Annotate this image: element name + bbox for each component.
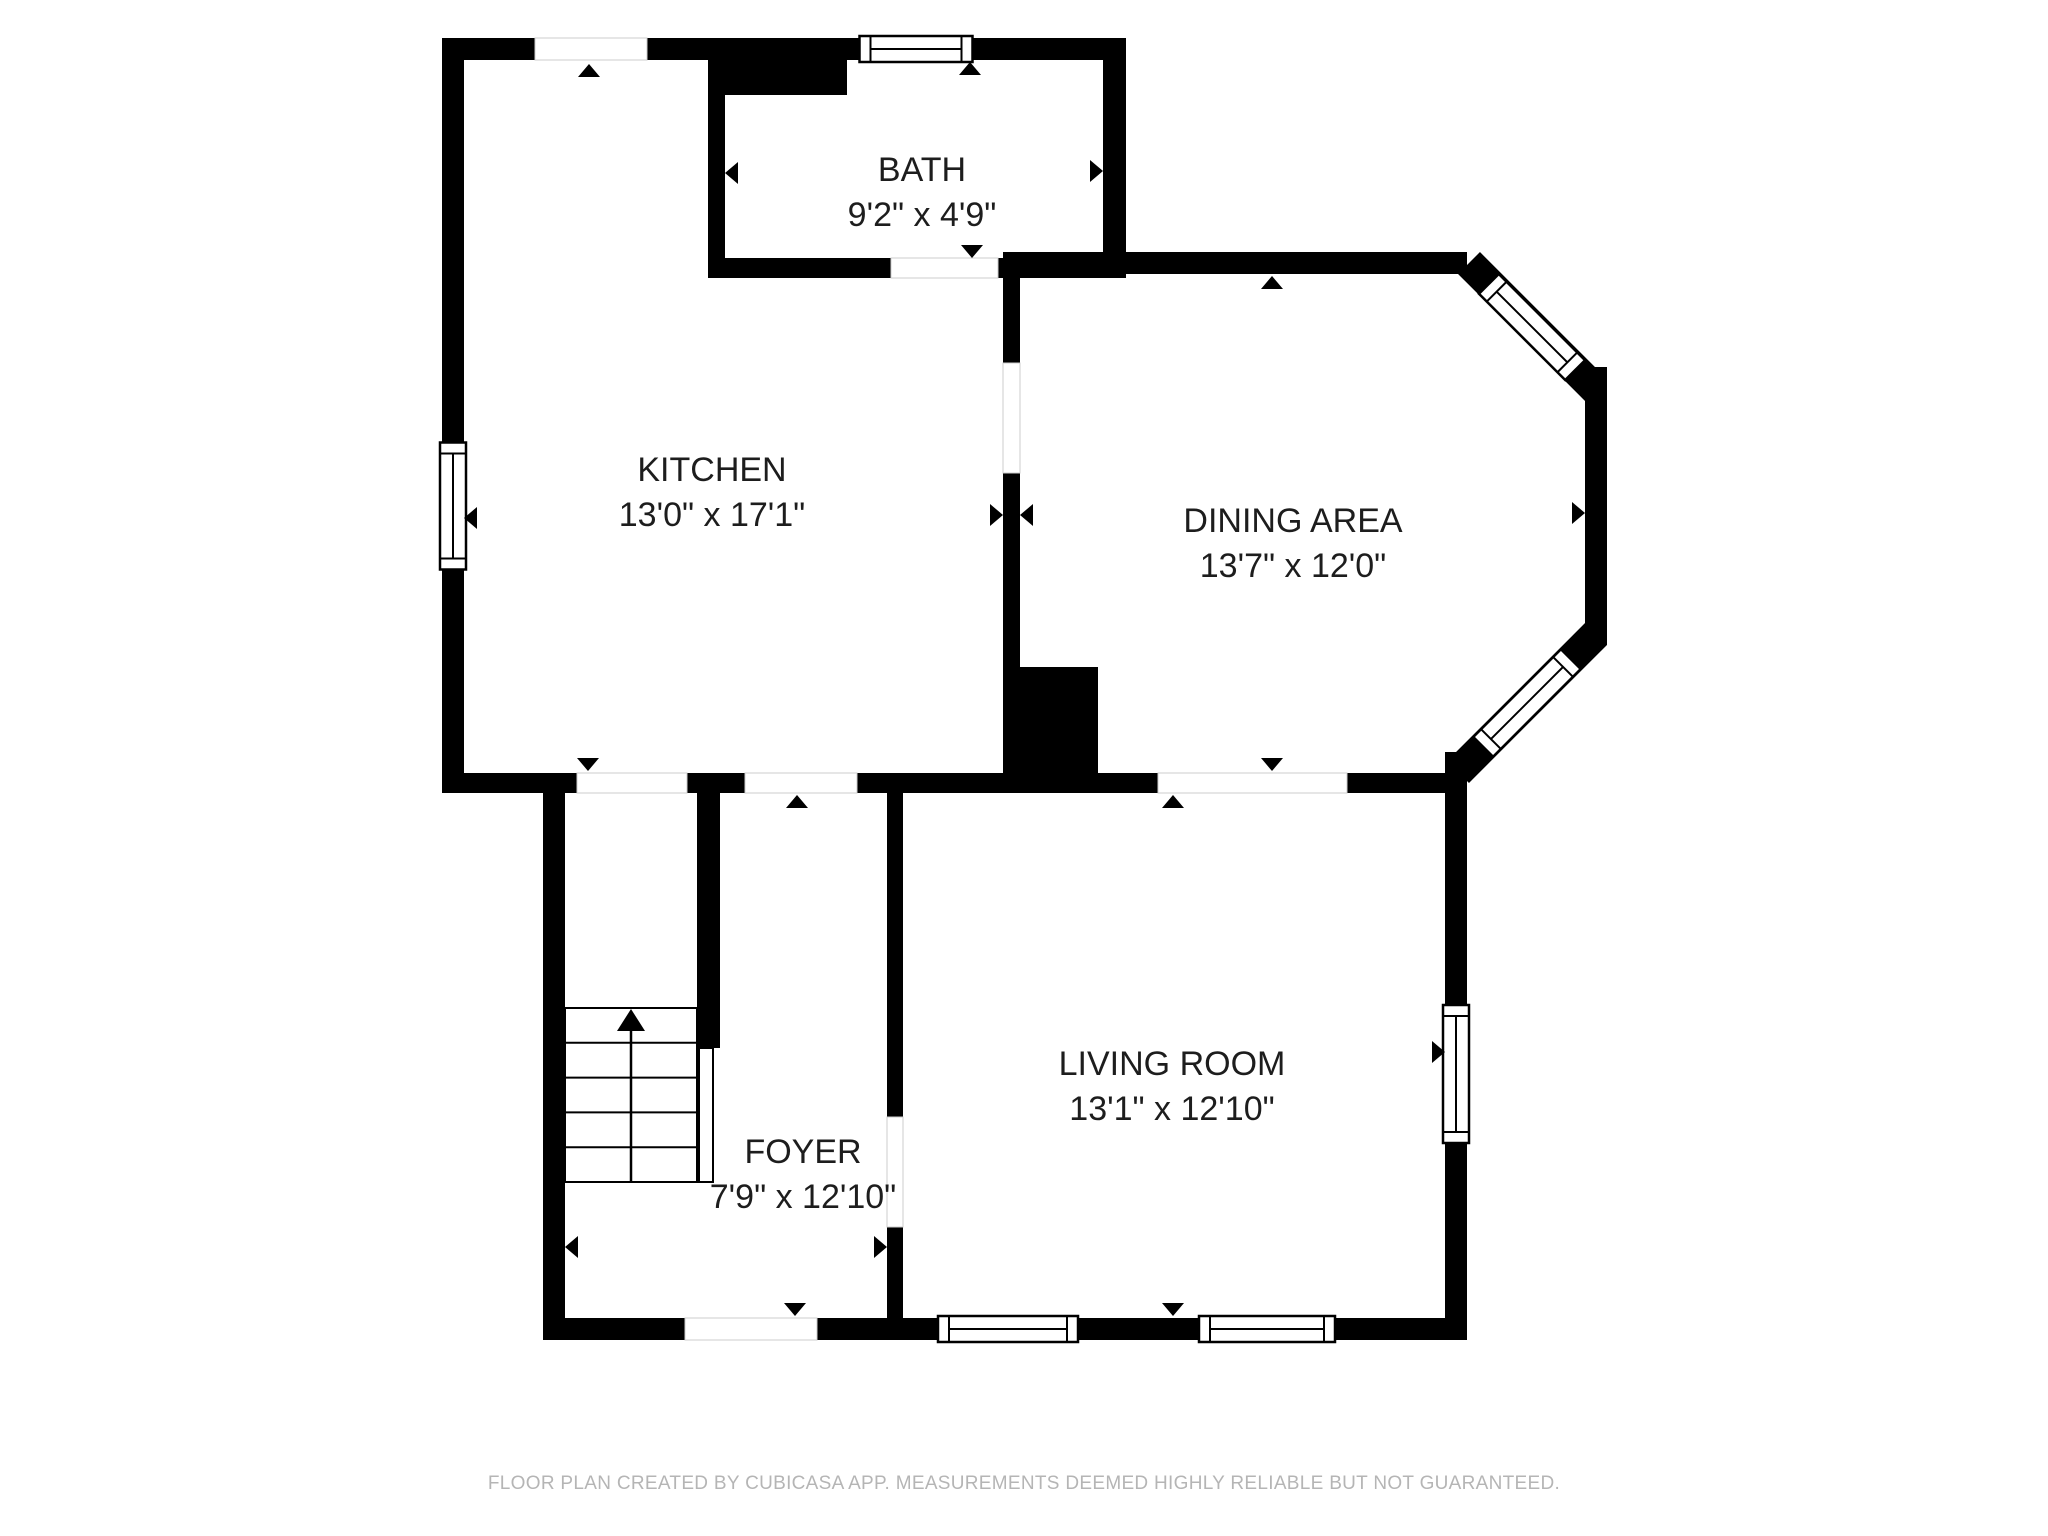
bath-south-wall-a: [708, 258, 891, 278]
foyer-left-arrow-icon: [565, 1236, 578, 1258]
bay-se-window: [1473, 649, 1580, 756]
dining-top-arrow-icon: [1261, 276, 1283, 289]
foyer-left-wall: [543, 793, 565, 1318]
bottom-wall-a: [543, 1318, 685, 1340]
foyer-right-lower: [887, 1227, 903, 1318]
room-name: FOYER: [710, 1130, 896, 1175]
bottom-wall-c: [1078, 1318, 1199, 1340]
top-wall-b: [647, 38, 860, 60]
bottom-wall-b: [817, 1318, 938, 1340]
dining-bay-arrow-icon: [1572, 502, 1585, 524]
bay-ne-window: [1479, 274, 1585, 380]
living-south-arrow-icon: [1162, 1303, 1184, 1316]
divider-lower: [1003, 473, 1020, 667]
kitchen-foyer-opening-2: [745, 773, 857, 793]
room-name: DINING AREA: [1183, 499, 1402, 544]
floor-plan-canvas: [0, 0, 2048, 1536]
south-band-c: [857, 773, 1158, 793]
bath-west-wall: [708, 95, 725, 278]
room-label-foyer: FOYER 7'9" x 12'10": [710, 1130, 896, 1220]
room-dimensions: 9'2" x 4'9": [848, 193, 997, 238]
left-wall-upper: [442, 38, 464, 443]
room-dimensions: 7'9" x 12'10": [710, 1175, 896, 1220]
south-band-b: [687, 773, 745, 793]
living-east-upper: [1445, 752, 1467, 1005]
footer-disclaimer: FLOOR PLAN CREATED BY CUBICASA APP. MEAS…: [488, 1473, 1560, 1495]
bay-east-wall: [1585, 367, 1607, 645]
foyer-right-upper: [887, 793, 903, 1117]
living-east-window: [1443, 1005, 1469, 1143]
room-name: BATH: [848, 148, 997, 193]
floor-plan-page: { "footer": { "text": "FLOOR PLAN CREATE…: [0, 0, 2048, 1536]
foyer-entry-arrow-icon: [784, 1303, 806, 1316]
kitchen-foyer-arrow-1-icon: [577, 758, 599, 771]
kitchen-dining-doorway: [1003, 363, 1020, 473]
room-dimensions: 13'0" x 17'1": [619, 493, 805, 538]
bath-window-arrow-icon: [959, 62, 981, 75]
bath-west-arrow-icon: [725, 162, 738, 184]
bath-doorway: [891, 258, 998, 278]
divider-door-arrow-east-icon: [1020, 504, 1033, 526]
dining-living-arrow-up-icon: [1162, 795, 1184, 808]
room-label-dining-area: DINING AREA 13'7" x 12'0": [1183, 499, 1402, 589]
foyer-stairs: [565, 1008, 713, 1182]
kitchen-left-window: [440, 443, 466, 570]
room-label-bath: BATH 9'2" x 4'9": [848, 148, 997, 238]
kitchen-top-opening-arrow-icon: [578, 64, 600, 77]
kitchen-top-opening: [535, 38, 647, 60]
dining-living-opening: [1158, 773, 1347, 793]
room-label-living-room: LIVING ROOM 13'1" x 12'10": [1059, 1042, 1286, 1132]
living-south-window-1: [938, 1316, 1078, 1342]
room-label-kitchen: KITCHEN 13'0" x 17'1": [619, 448, 805, 538]
divider-upper: [1003, 273, 1020, 363]
left-wall-lower: [442, 570, 464, 793]
room-name: KITCHEN: [619, 448, 805, 493]
bath-east-arrow-icon: [1090, 160, 1103, 182]
bath-top-window: [860, 36, 973, 62]
room-name: LIVING ROOM: [1059, 1042, 1286, 1087]
kitchen-foyer-opening-1: [577, 773, 687, 793]
living-east-lower: [1445, 1143, 1467, 1340]
kitchen-foyer-arrow-2-icon: [786, 795, 808, 808]
bottom-wall-d: [1335, 1318, 1467, 1340]
stair-stub-wall: [697, 793, 720, 1048]
south-band-a: [442, 773, 577, 793]
bath-door-arrow-icon: [961, 245, 983, 258]
dining-living-arrow-down-icon: [1261, 758, 1283, 771]
living-south-window-2: [1199, 1316, 1335, 1342]
foyer-right-arrow-icon: [874, 1236, 887, 1258]
bath-east-wall: [1103, 38, 1126, 274]
bath-west-mass: [708, 60, 847, 95]
room-dimensions: 13'1" x 12'10": [1059, 1087, 1286, 1132]
room-dimensions: 13'7" x 12'0": [1183, 544, 1402, 589]
divider-door-arrow-west-icon: [990, 504, 1003, 526]
foyer-entry-opening: [685, 1318, 817, 1340]
dining-top-wall: [1003, 252, 1467, 274]
